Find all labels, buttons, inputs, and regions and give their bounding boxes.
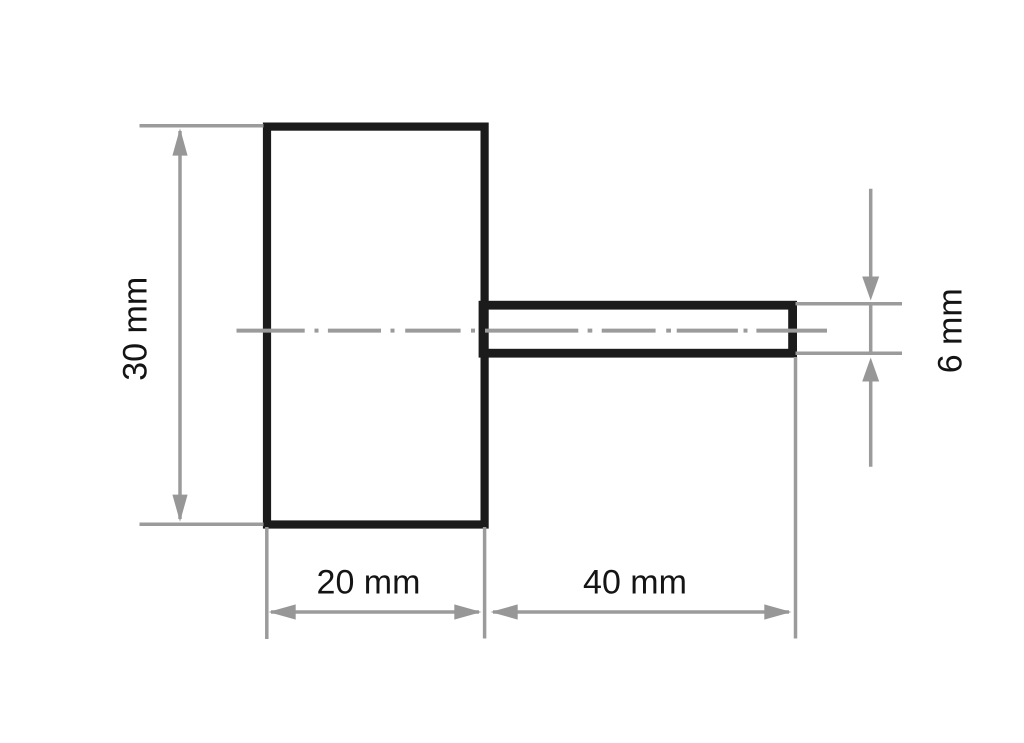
- svg-text:6 mm: 6 mm: [932, 288, 970, 373]
- svg-text:30 mm: 30 mm: [117, 277, 155, 381]
- svg-text:20 mm: 20 mm: [317, 564, 421, 602]
- svg-text:40 mm: 40 mm: [583, 564, 687, 602]
